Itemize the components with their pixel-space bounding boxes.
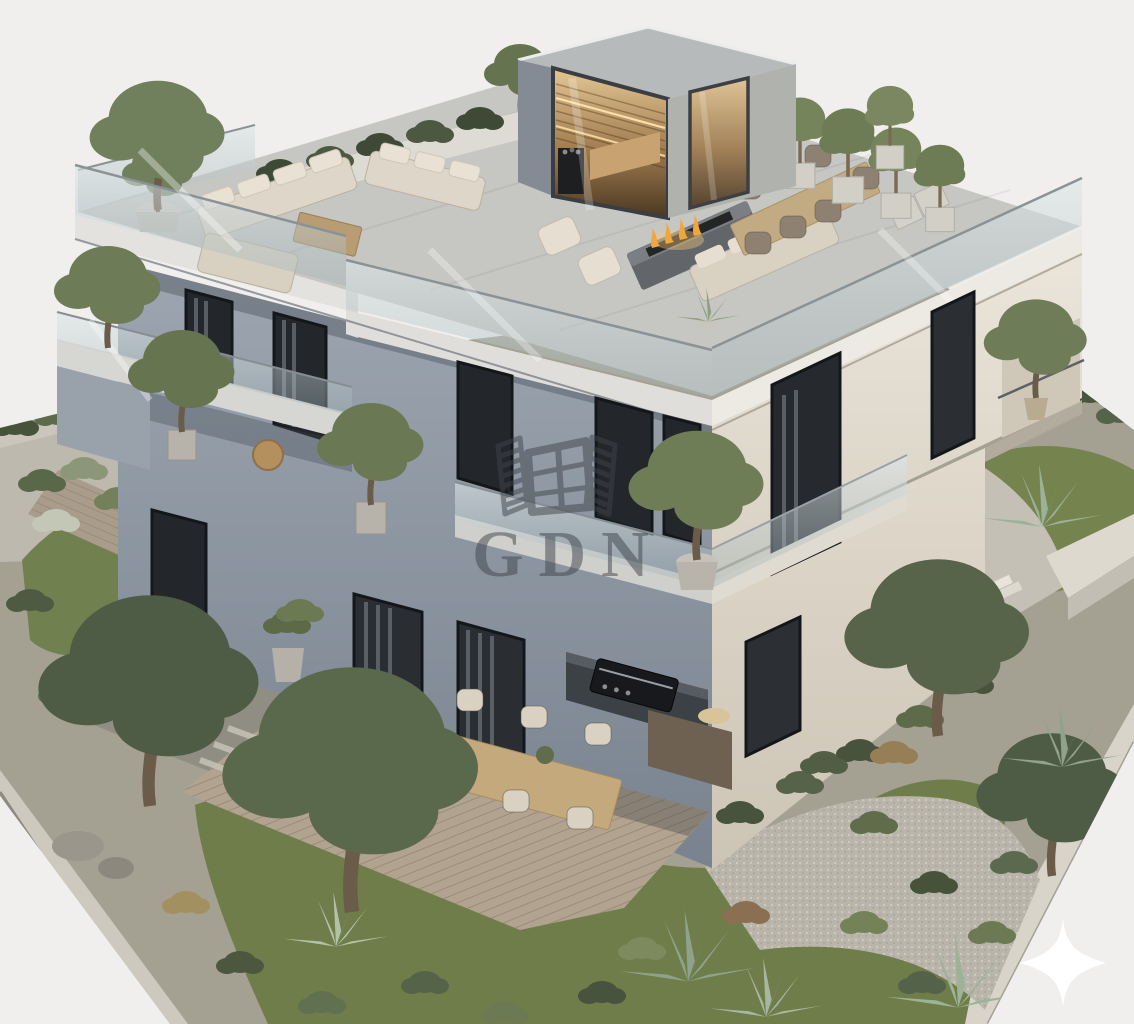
bistro-table [253, 440, 283, 470]
watermark-text: GDN [472, 518, 664, 591]
rock [52, 831, 104, 861]
sauna-glass-door [690, 78, 748, 208]
rock [98, 857, 134, 879]
bread-bowl [698, 708, 730, 724]
sauna-cabin [518, 27, 796, 218]
architectural-render: GDN [0, 0, 1134, 1024]
